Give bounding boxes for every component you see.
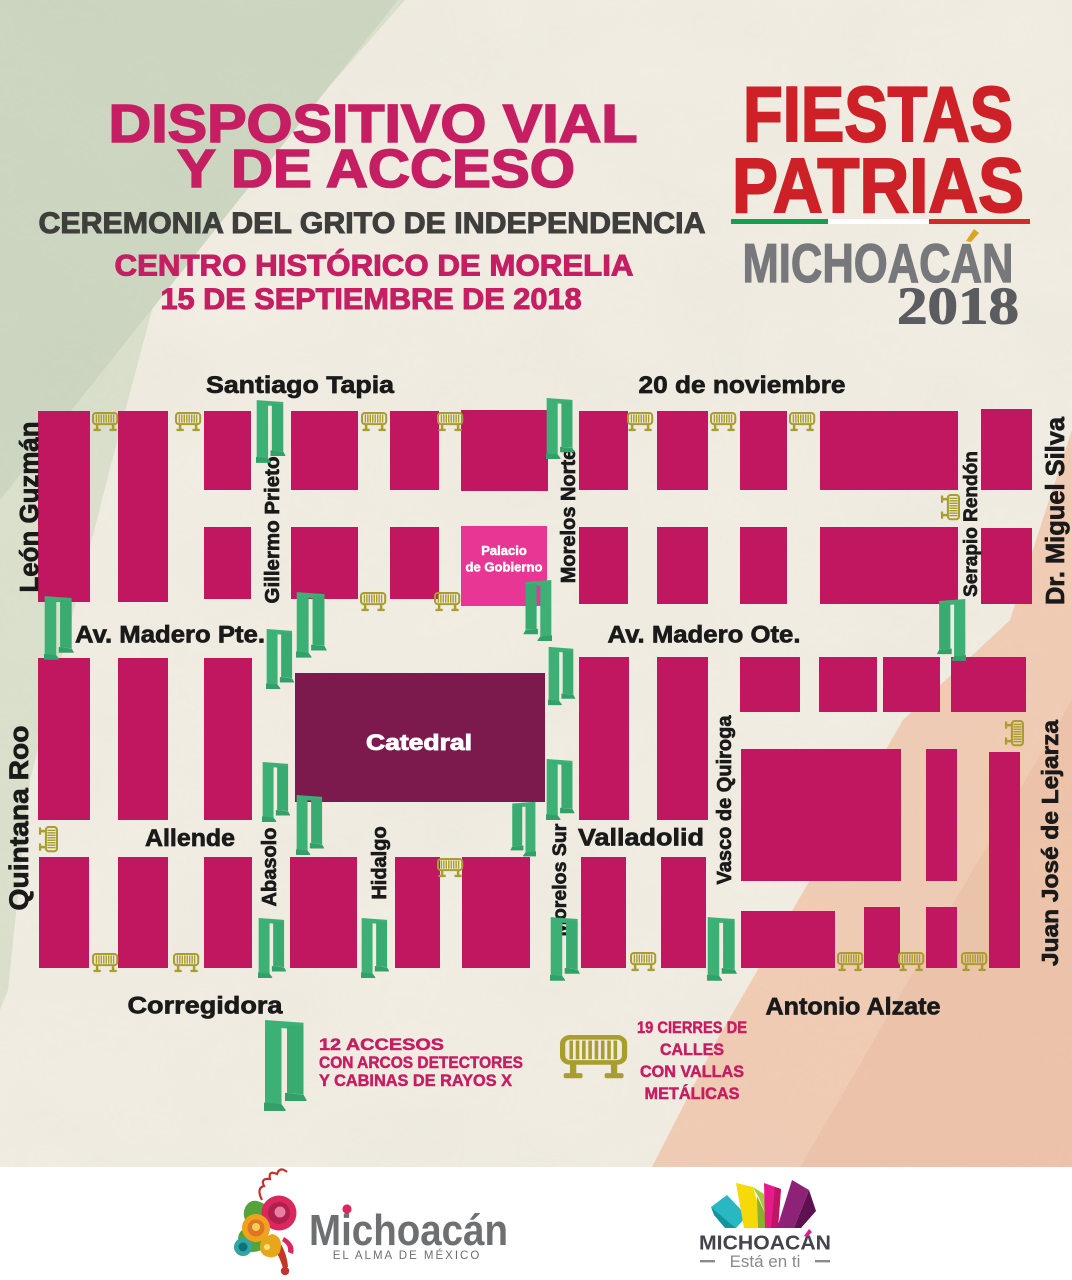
svg-text:Valladolid: Valladolid [578, 825, 704, 852]
svg-text:CON ARCOS DETECTORES: CON ARCOS DETECTORES [319, 1053, 523, 1072]
svg-text:Está en ti: Está en ti [730, 1252, 801, 1271]
svg-text:19 CIERRES DE: 19 CIERRES DE [637, 1018, 747, 1037]
svg-text:Juan José de Lejarza: Juan José de Lejarza [1037, 719, 1063, 966]
svg-text:CALLES: CALLES [660, 1040, 724, 1059]
svg-text:Corregidora: Corregidora [128, 993, 283, 1020]
svg-text:Y DE ACCESO: Y DE ACCESO [177, 139, 575, 199]
svg-text:CENTRO HISTÓRICO DE MORELIA: CENTRO HISTÓRICO DE MORELIA [115, 249, 634, 283]
svg-text:Dr. Miguel Silva: Dr. Miguel Silva [1040, 416, 1070, 605]
svg-text:20 de noviembre: 20 de noviembre [639, 372, 846, 399]
svg-text:Gillermo Prieto: Gillermo Prieto [261, 457, 284, 604]
svg-text:Serapio Rendón: Serapio Rendón [961, 451, 982, 597]
svg-text:Morelos Norte: Morelos Norte [558, 449, 580, 583]
svg-text:Palacio: Palacio [481, 543, 527, 558]
svg-text:León Guzmán: León Guzmán [16, 422, 44, 593]
svg-text:Abasolo: Abasolo [259, 828, 281, 907]
svg-text:Vasco de Quiroga: Vasco de Quiroga [714, 715, 736, 885]
svg-text:Y CABINAS DE RAYOS X: Y CABINAS DE RAYOS X [319, 1071, 513, 1090]
svg-text:Quintana Roo: Quintana Roo [4, 726, 34, 911]
svg-text:Santiago Tapia: Santiago Tapia [206, 372, 394, 399]
svg-text:Hidalgo: Hidalgo [369, 826, 391, 899]
svg-text:2018: 2018 [897, 278, 1019, 336]
svg-text:Michoacán: Michoacán [309, 1206, 508, 1255]
svg-text:Catedral: Catedral [366, 730, 472, 755]
svg-text:Allende: Allende [145, 825, 235, 852]
svg-text:CEREMONIA DEL GRITO DE INDEPEN: CEREMONIA DEL GRITO DE INDEPENDENCIA [39, 207, 706, 240]
svg-text:EL ALMA DE MÉXICO: EL ALMA DE MÉXICO [333, 1249, 482, 1262]
svg-text:PATRIAS: PATRIAS [732, 143, 1024, 229]
svg-text:Antonio Alzate: Antonio Alzate [766, 994, 941, 1021]
svg-text:METÁLICAS: METÁLICAS [645, 1084, 740, 1103]
svg-text:15 DE SEPTIEMBRE DE 2018: 15 DE SEPTIEMBRE DE 2018 [161, 283, 582, 316]
svg-text:12 ACCESOS: 12 ACCESOS [319, 1035, 444, 1054]
svg-text:Av. Madero Pte.: Av. Madero Pte. [75, 622, 265, 649]
svg-text:Av. Madero Ote.: Av. Madero Ote. [608, 622, 801, 649]
svg-text:CON VALLAS: CON VALLAS [640, 1062, 744, 1081]
svg-text:de Gobierno: de Gobierno [466, 560, 543, 575]
